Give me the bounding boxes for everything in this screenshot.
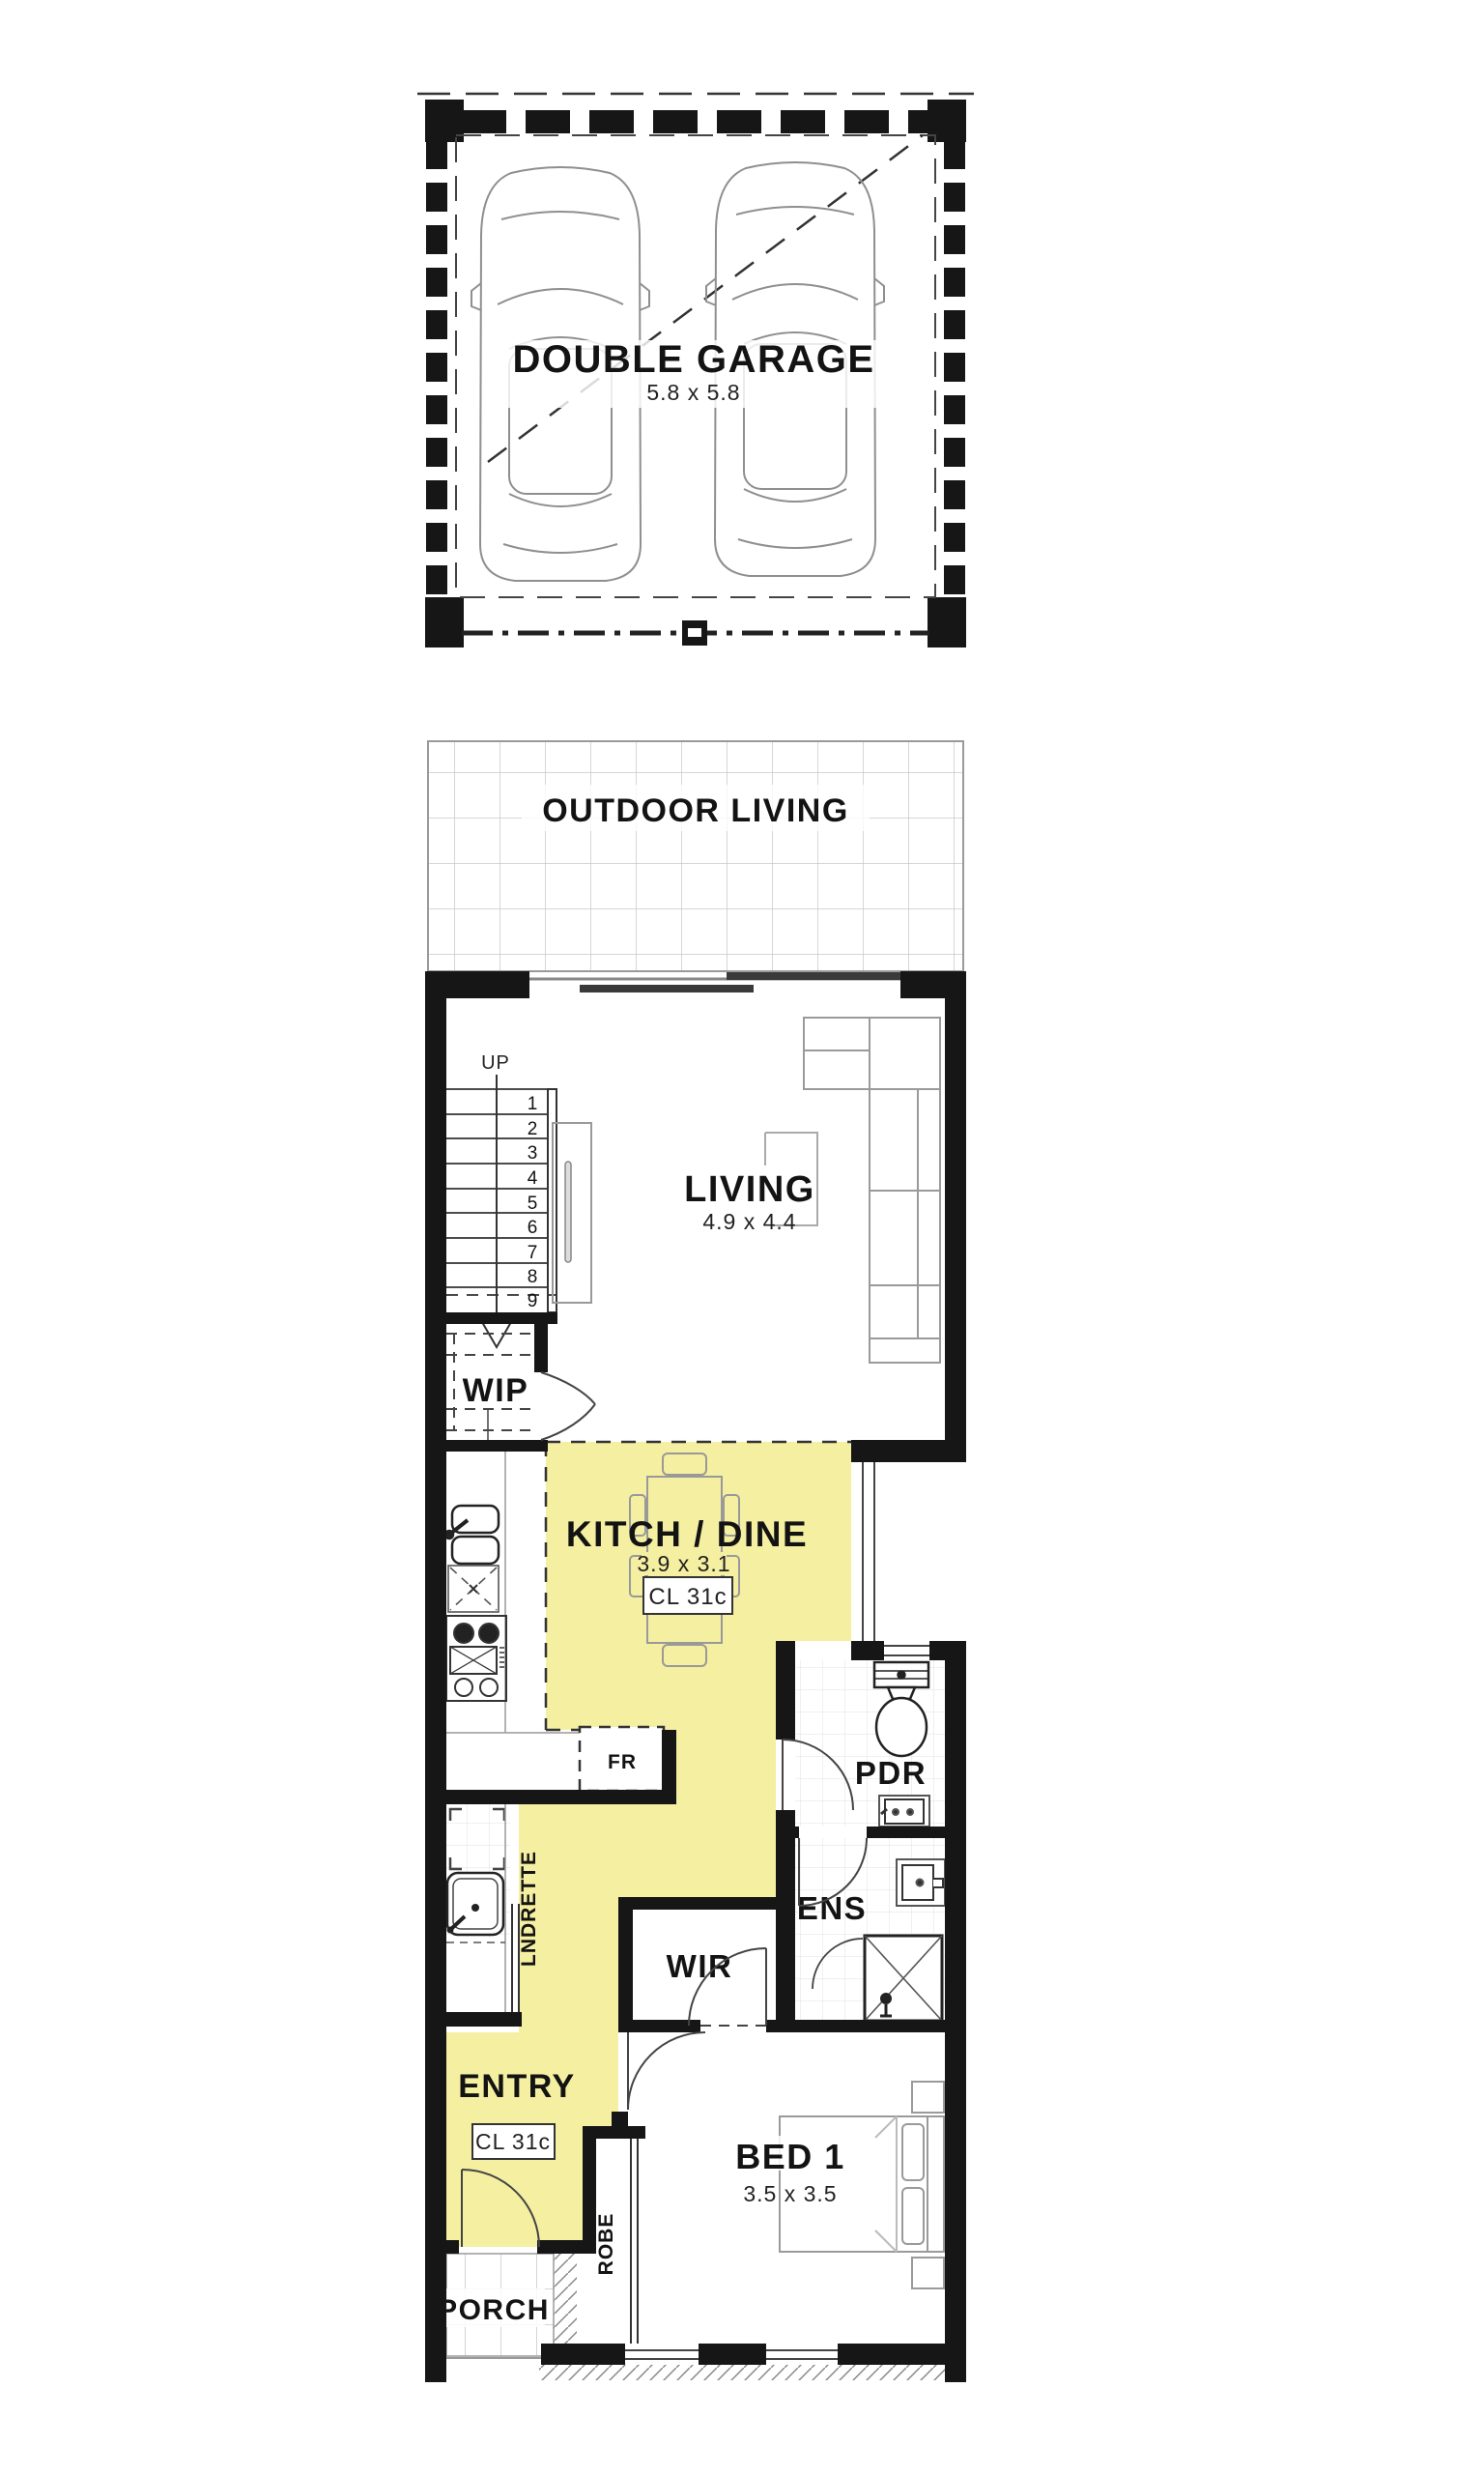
garage-room: DOUBLE GARAGE 5.8 x 5.8 (417, 94, 974, 647)
svg-text:5: 5 (528, 1194, 538, 1214)
living-label: LIVING (684, 1169, 815, 1210)
pdr-basin (879, 1796, 929, 1827)
staircase (446, 1075, 556, 1347)
robe: ROBE (595, 2112, 638, 2344)
laundrette-label: LNDRETTE (518, 1851, 540, 1967)
svg-text:1: 1 (528, 1094, 538, 1114)
toilet (874, 1662, 928, 1756)
dishwasher (448, 1566, 499, 1612)
bed1-dim: 3.5 x 3.5 (743, 2181, 837, 2206)
bedside-table-top (912, 2082, 944, 2113)
kitchen-sink (445, 1506, 499, 1564)
stacker-door (529, 972, 900, 992)
laundry-tub (447, 1873, 504, 1935)
ens-label: ENS (797, 1890, 867, 1926)
robe-label: ROBE (595, 2213, 617, 2276)
ens-vanity (897, 1859, 945, 1906)
tv-unit (553, 1123, 591, 1303)
pdr-label: PDR (855, 1755, 927, 1791)
garage-label: DOUBLE GARAGE (512, 338, 874, 381)
svg-text:7: 7 (528, 1243, 538, 1263)
stair-numbers: 1 2 3 4 5 6 7 8 9 (528, 1094, 538, 1311)
svg-text:2: 2 (528, 1119, 538, 1139)
entry-ceiling-label: CL 31c (475, 2129, 551, 2154)
wip-room: WIP (446, 1334, 534, 1440)
fridge-label: FR (608, 1751, 637, 1773)
svg-text:6: 6 (528, 1218, 538, 1238)
bed1-room: BED 1 3.5 x 3.5 (723, 2082, 944, 2288)
bedside-table-bottom (912, 2258, 944, 2288)
living-dim: 4.9 x 4.4 (702, 1209, 796, 1234)
threshold-hatch (539, 2365, 966, 2380)
svg-text:3: 3 (528, 1143, 538, 1164)
wip-door (541, 1372, 595, 1440)
kitchen-ceiling-label: CL 31c (648, 1584, 727, 1610)
outdoor-living-label: OUTDOOR LIVING (542, 792, 849, 829)
living-room: UP 1 2 3 4 5 6 7 8 9 (446, 1018, 940, 1363)
floorplan-drawing: DOUBLE GARAGE 5.8 x 5.8 OUTDOOR LIVING U… (0, 0, 1484, 2474)
cooktop-oven (446, 1616, 506, 1701)
stairs-up-label: UP (481, 1052, 510, 1074)
svg-text:4: 4 (528, 1168, 538, 1189)
bed1-label: BED 1 (735, 2137, 845, 2176)
kitchen-dine-label: KITCH / DINE (566, 1514, 808, 1554)
floorplan-canvas: DOUBLE GARAGE 5.8 x 5.8 OUTDOOR LIVING U… (0, 0, 1484, 2474)
bed1-door (628, 2032, 705, 2110)
entry-label: ENTRY (458, 2068, 575, 2105)
porch-label: PORCH (438, 2294, 550, 2326)
robe-sliding-door (631, 2139, 638, 2344)
sofa (804, 1018, 940, 1363)
kitchen-dine-dim: 3.9 x 3.1 (637, 1551, 730, 1576)
garage-dim: 5.8 x 5.8 (646, 380, 740, 405)
svg-text:8: 8 (528, 1267, 538, 1287)
shower (865, 1936, 942, 2021)
wir-label: WIR (667, 1948, 733, 1984)
wip-label: WIP (463, 1372, 529, 1409)
svg-text:9: 9 (528, 1291, 538, 1311)
outdoor-living-room: OUTDOOR LIVING (428, 741, 963, 971)
